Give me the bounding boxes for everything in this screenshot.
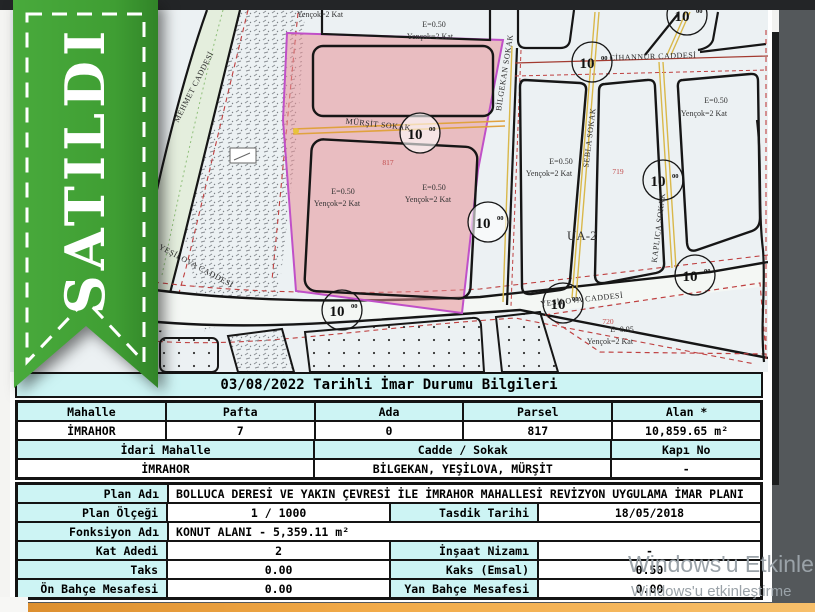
svg-text:10: 10: [330, 304, 345, 320]
label-fonksiyon-adi: Fonksiyon Adı: [17, 522, 168, 541]
header-parsel: Parsel: [463, 402, 612, 421]
svg-text:00: 00: [704, 268, 711, 275]
zoning-note: Yençok=2 Kat: [681, 109, 728, 118]
table-value-row: İMRAHOR 7 0 817 10,859.65 m²: [17, 421, 761, 440]
value-alan: 10,859.65 m²: [612, 421, 761, 440]
label-kat-adedi: Kat Adedi: [17, 541, 167, 560]
value-kapi-no: -: [611, 459, 761, 478]
zoning-note: Yençok=2 Kat: [297, 10, 344, 19]
scan-edge-shadow: [772, 30, 779, 485]
zoning-note: Yençok=2 Kat: [407, 32, 454, 41]
paper-corner: [772, 10, 779, 32]
value-plan-adi: BOLLUCA DERESİ VE YAKIN ÇEVRESİ İLE İMRA…: [168, 484, 761, 503]
value-tasdik-tarihi: 18/05/2018: [538, 503, 761, 522]
header-cadde-sokak: Cadde / Sokak: [314, 440, 611, 459]
svg-text:00: 00: [672, 173, 679, 180]
label-tasdik-tarihi: Tasdik Tarihi: [390, 503, 538, 522]
header-idari-mahalle: İdari Mahalle: [17, 440, 314, 459]
svg-text:10: 10: [580, 56, 595, 72]
value-pafta: 7: [166, 421, 315, 440]
zoning-note: E=0.50: [422, 20, 445, 29]
svg-text:10: 10: [476, 216, 491, 232]
header-mahalle: Mahalle: [17, 402, 166, 421]
label-kaks-emsal: Kaks (Emsal): [390, 560, 538, 579]
block-outline: [160, 338, 218, 372]
header-ada: Ada: [315, 402, 464, 421]
zoning-note: E=0.50: [704, 96, 727, 105]
label-on-bahce: Ön Bahçe Mesafesi: [17, 579, 167, 598]
zoning-note: E=0.50: [331, 187, 354, 196]
svg-text:00: 00: [696, 10, 703, 15]
block-outline: [228, 329, 294, 372]
zone-label-ua2: UA-2: [567, 228, 597, 243]
value-kat-adedi: 2: [167, 541, 390, 560]
zoning-note: Yençok=2 Kat: [587, 337, 634, 346]
value-fonksiyon-adi: KONUT ALANI - 5,359.11 m²: [168, 522, 761, 541]
svg-text:10: 10: [675, 10, 690, 25]
table-header-row: Mahalle Pafta Ada Parsel Alan *: [17, 402, 761, 421]
table-row-plan-olcegi: Plan Ölçeği 1 / 1000 Tasdik Tarihi 18/05…: [17, 503, 761, 522]
screenshot-root: { "ribbon": { "text": "SATILDI" }, "map"…: [0, 0, 815, 612]
label-taks: Taks: [17, 560, 167, 579]
table-row-fonksiyon: Fonksiyon Adı KONUT ALANI - 5,359.11 m²: [17, 522, 761, 541]
header-pafta: Pafta: [166, 402, 315, 421]
road-width-decimals: 00: [429, 126, 436, 133]
junction-marker: [293, 128, 299, 134]
table-value-row: İMRAHOR BİLGEKAN, YEŞİLOVA, MÜRŞİT -: [17, 459, 761, 478]
header-kapi-no: Kapı No: [611, 440, 761, 459]
zoning-note: E=0.95: [610, 325, 633, 334]
bottom-orange-strip: [28, 603, 815, 612]
zoning-note: Yençok=2 Kat: [526, 169, 573, 178]
value-cadde-sokak: BİLGEKAN, YEŞİLOVA, MÜRŞİT: [314, 459, 611, 478]
label-yan-bahce: Yan Bahçe Mesafesi: [390, 579, 538, 598]
parcel-number-720: 720: [602, 317, 614, 326]
table-header-row: İdari Mahalle Cadde / Sokak Kapı No: [17, 440, 761, 459]
zoning-note: Yençok=2 Kat: [405, 195, 452, 204]
header-alan: Alan *: [612, 402, 761, 421]
parcel-number-719: 719: [612, 167, 624, 176]
label-plan-olcegi: Plan Ölçeği: [17, 503, 167, 522]
value-mahalle: İMRAHOR: [17, 421, 166, 440]
parcel-info-section: Mahalle Pafta Ada Parsel Alan * İMRAHOR …: [15, 400, 763, 480]
svg-text:00: 00: [351, 303, 358, 310]
page-bottom-corner: [0, 597, 28, 612]
zoning-note: E=0.50: [549, 157, 572, 166]
value-on-bahce: 0.00: [167, 579, 390, 598]
zoning-note: E=0.50: [422, 183, 445, 192]
value-ada: 0: [315, 421, 464, 440]
sold-ribbon-text: SATILDI: [53, 26, 117, 314]
zoning-note: Yençok=2 Kat: [314, 199, 361, 208]
parcel-number-817: 817: [382, 158, 394, 167]
map-symbol-box: [230, 148, 256, 163]
svg-text:00: 00: [497, 215, 504, 222]
svg-text:10: 10: [651, 174, 666, 190]
value-plan-olcegi: 1 / 1000: [167, 503, 390, 522]
label-insaat-nizami: İnşaat Nizamı: [390, 541, 538, 560]
table-row-plan-adi: Plan Adı BOLLUCA DERESİ VE YAKIN ÇEVRESİ…: [17, 484, 761, 503]
value-idari-mahalle: İMRAHOR: [17, 459, 314, 478]
windows-activation-watermark-line2: Windows'u etkinleştirme: [631, 583, 791, 600]
windows-activation-watermark-line1: Windows'u Etkinle: [628, 551, 814, 578]
sold-ribbon: SATILDI: [11, 0, 161, 400]
svg-text:10: 10: [683, 269, 698, 285]
value-taks: 0.00: [167, 560, 390, 579]
label-plan-adi: Plan Adı: [17, 484, 168, 503]
value-parsel: 817: [463, 421, 612, 440]
svg-text:00: 00: [601, 55, 608, 62]
page-left-margin: [0, 10, 10, 612]
